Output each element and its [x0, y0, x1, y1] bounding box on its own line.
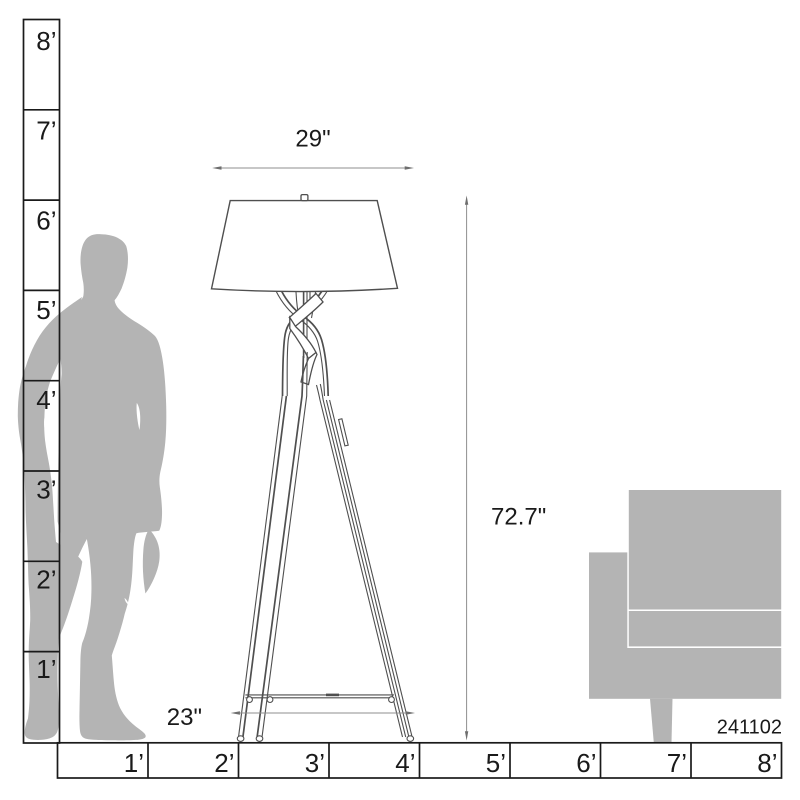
svg-text:3’: 3’ — [305, 748, 325, 778]
svg-text:7’: 7’ — [36, 116, 56, 146]
svg-text:29": 29" — [295, 126, 330, 153]
svg-text:6’: 6’ — [576, 748, 596, 778]
svg-text:2’: 2’ — [36, 564, 56, 594]
svg-text:1’: 1’ — [124, 748, 144, 778]
svg-text:8’: 8’ — [36, 26, 56, 56]
svg-text:23": 23" — [167, 704, 202, 731]
svg-text:7’: 7’ — [667, 748, 687, 778]
svg-text:8’: 8’ — [757, 748, 777, 778]
svg-text:1’: 1’ — [36, 654, 56, 684]
svg-text:6’: 6’ — [36, 205, 56, 235]
svg-text:2’: 2’ — [214, 748, 234, 778]
svg-text:4’: 4’ — [36, 385, 56, 415]
svg-text:4’: 4’ — [395, 748, 415, 778]
svg-text:72.7": 72.7" — [491, 504, 546, 531]
svg-text:5’: 5’ — [486, 748, 506, 778]
svg-text:3’: 3’ — [36, 475, 56, 505]
svg-text:5’: 5’ — [36, 295, 56, 325]
svg-text:241102: 241102 — [717, 717, 782, 739]
